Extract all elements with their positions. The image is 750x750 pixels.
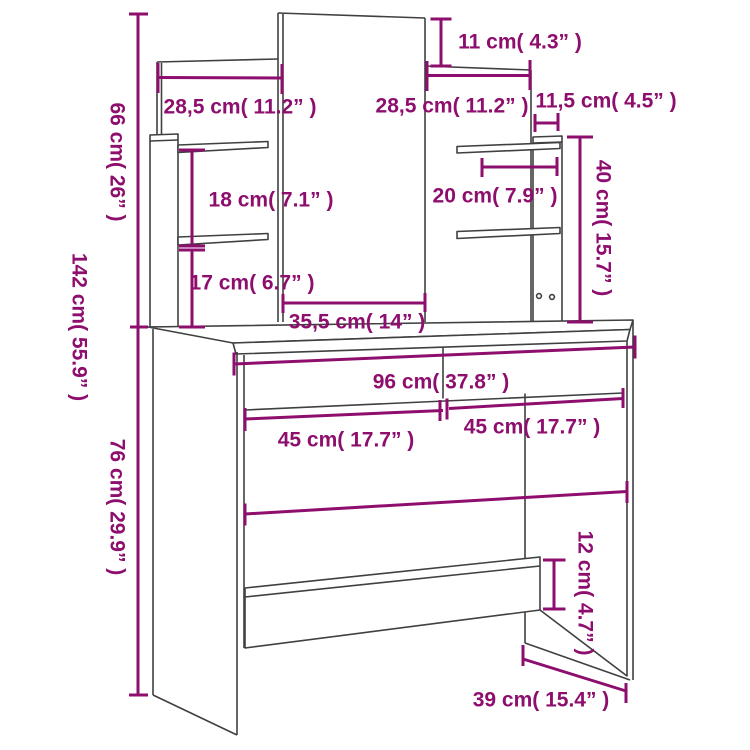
side-strip-depth-11-5cm-label: 11,5 cm( 4.5” ) [535,91,676,112]
right-panel-width-28-5cm-label: 28,5 cm( 11.2” ) [376,96,529,117]
drawer-right-width-45cm-label: 45 cm( 17.7” ) [464,417,601,438]
shelf-gap-18cm-label: 18 cm( 7.1” ) [209,190,334,211]
table-height-76cm-label: 76 cm( 29.9” ) [107,439,128,576]
left-panel-width-28-5cm-label: 28,5 cm( 11.2” ) [164,97,317,118]
shelf-depth-20cm-label: 20 cm( 7.9” ) [433,186,558,207]
table-depth-39cm-label: 39 cm( 15.4” ) [473,690,610,711]
drawer-left-width-45cm-label: 45 cm( 17.7” ) [278,430,415,451]
mirror-width-35-5cm-label: 35,5 cm( 14” ) [289,312,426,333]
crossbar-height-12cm-label: 12 cm( 4.7” ) [575,531,596,656]
upper-height-66cm-label: 66 cm( 26” ) [107,102,128,221]
dimension-diagram: 11 cm( 4.3” )28,5 cm( 11.2” )28,5 cm( 11… [0,0,750,750]
shelf-to-top-17cm-label: 17 cm( 6.7” ) [190,273,315,294]
total-height-142cm-label: 142 cm( 55.9” ) [69,253,90,401]
mirror-top-height-11cm-label: 11 cm( 4.3” ) [458,32,582,53]
dimension-labels: 11 cm( 4.3” )28,5 cm( 11.2” )28,5 cm( 11… [0,0,750,750]
shelf-unit-height-40cm-label: 40 cm( 15.7” ) [593,160,614,297]
table-width-96cm-label: 96 cm( 37.8” ) [373,372,510,393]
